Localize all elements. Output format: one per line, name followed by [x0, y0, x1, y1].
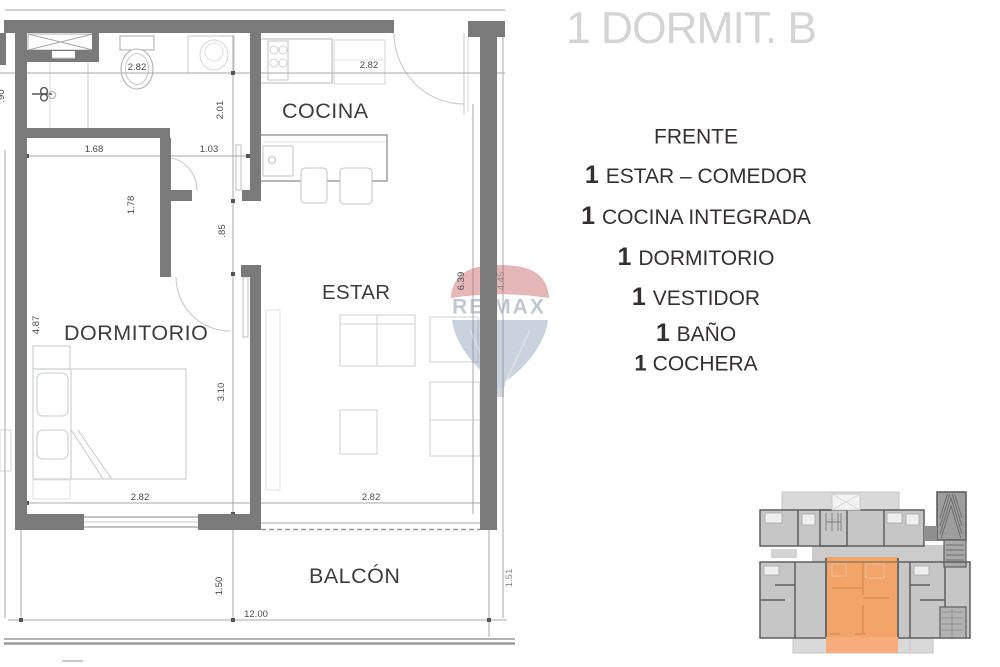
svg-text:12.00: 12.00 [244, 609, 268, 620]
svg-text:COCINA: COCINA [282, 99, 369, 123]
svg-text:2.01: 2.01 [215, 101, 226, 120]
svg-text:.85: .85 [217, 224, 228, 237]
svg-text:1 VESTIDOR: 1 VESTIDOR [632, 283, 760, 311]
svg-text:FRENTE: FRENTE [654, 126, 738, 149]
svg-text:1 COCHERA: 1 COCHERA [634, 351, 757, 376]
svg-text:RE/MAX: RE/MAX [452, 296, 546, 319]
svg-text:2.82: 2.82 [360, 60, 379, 71]
svg-text:2.82: 2.82 [131, 492, 150, 503]
svg-text:2.82: 2.82 [362, 492, 381, 503]
svg-text:2.82: 2.82 [128, 62, 147, 73]
svg-text:1.78: 1.78 [126, 196, 137, 215]
svg-text:1 COCINA INTEGRADA: 1 COCINA INTEGRADA [581, 202, 811, 230]
svg-text:1 DORMITORIO: 1 DORMITORIO [618, 243, 775, 271]
svg-text:4.87: 4.87 [31, 316, 42, 335]
svg-text:1.03: 1.03 [200, 144, 219, 155]
svg-text:3.10: 3.10 [216, 383, 227, 402]
svg-text:.90: .90 [0, 89, 7, 102]
svg-text:1.68: 1.68 [85, 144, 104, 155]
svg-text:1 BAÑO: 1 BAÑO [656, 319, 736, 347]
svg-text:ESTAR: ESTAR [322, 281, 390, 304]
svg-text:1.50: 1.50 [214, 577, 225, 596]
svg-text:1 ESTAR – COMEDOR: 1 ESTAR – COMEDOR [585, 161, 807, 189]
svg-text:4.45: 4.45 [496, 272, 507, 291]
svg-text:1.51: 1.51 [504, 569, 515, 588]
svg-text:DORMITORIO: DORMITORIO [64, 321, 208, 345]
svg-text:6.39: 6.39 [456, 272, 467, 291]
svg-text:BALCÓN: BALCÓN [309, 563, 400, 588]
svg-text:1 DORMIT. B: 1 DORMIT. B [566, 4, 816, 53]
